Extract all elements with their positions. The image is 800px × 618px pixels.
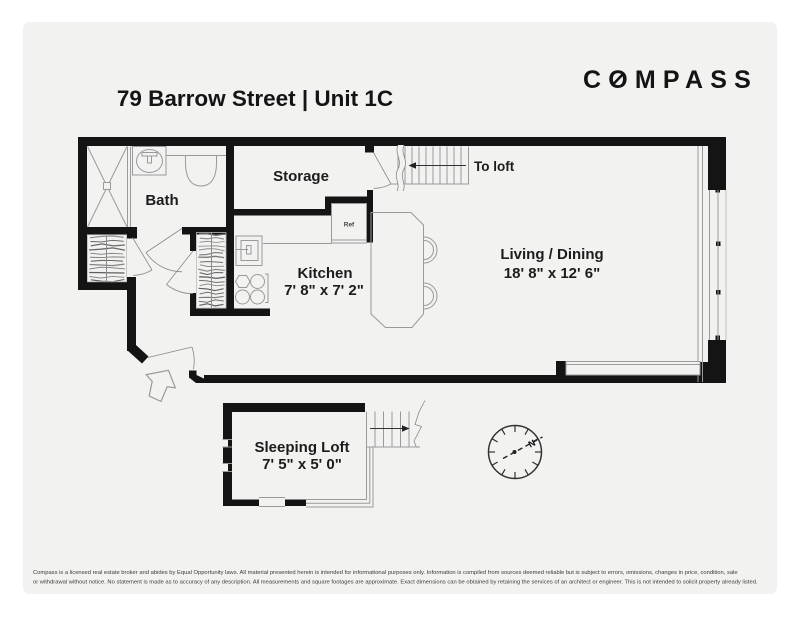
svg-text:Ref: Ref — [344, 222, 355, 229]
svg-text:Compass is a licensed real est: Compass is a licensed real estate broker… — [33, 570, 738, 576]
svg-text:or withdrawal without notice.: or withdrawal without notice. No stateme… — [33, 580, 758, 586]
svg-text:Sleeping Loft: Sleeping Loft — [255, 439, 350, 456]
svg-text:To loft: To loft — [474, 159, 515, 174]
svg-text:79 Barrow Street | Unit 1C: 79 Barrow Street | Unit 1C — [117, 86, 393, 111]
svg-text:7' 5" x 5' 0": 7' 5" x 5' 0" — [262, 456, 342, 473]
svg-text:N: N — [527, 438, 537, 450]
svg-text:Living / Dining: Living / Dining — [500, 246, 603, 263]
svg-text:Kitchen: Kitchen — [297, 265, 352, 282]
svg-text:COMPASS: COMPASS — [583, 66, 758, 94]
svg-text:Bath: Bath — [145, 192, 178, 209]
svg-text:18' 8" x 12' 6": 18' 8" x 12' 6" — [504, 265, 600, 282]
svg-text:Storage: Storage — [273, 168, 329, 185]
svg-text:7' 8" x 7' 2": 7' 8" x 7' 2" — [284, 282, 364, 299]
